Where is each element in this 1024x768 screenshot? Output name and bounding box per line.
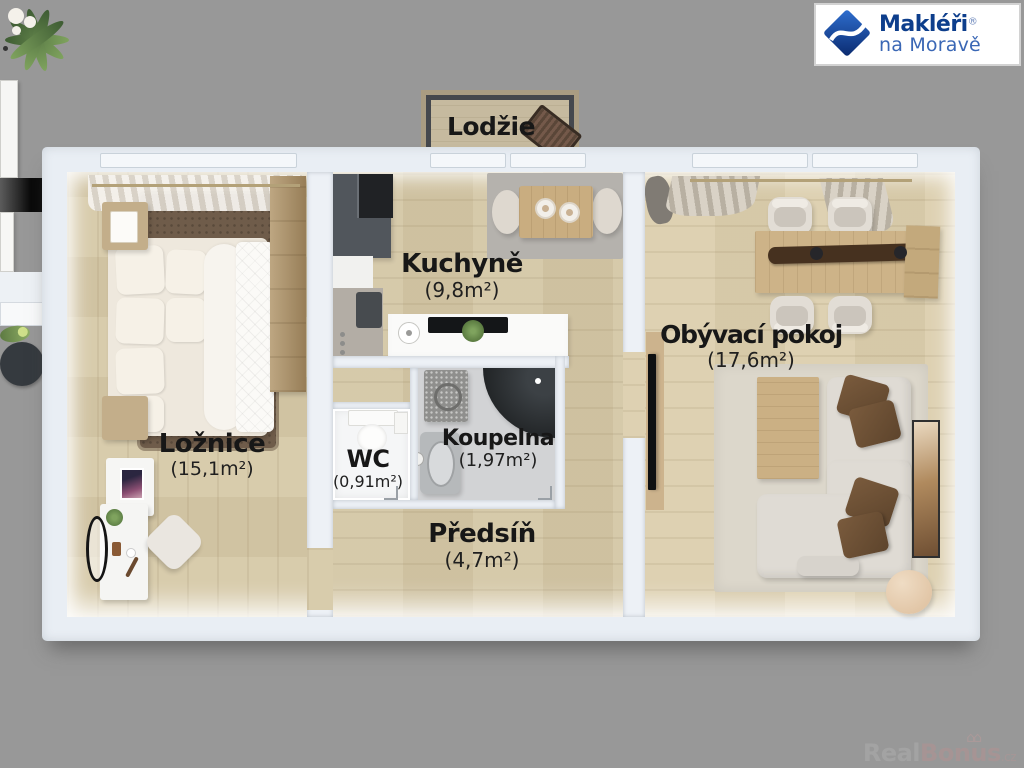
registered-mark: ®	[968, 17, 978, 28]
kitchen-sink	[356, 292, 382, 328]
tv	[648, 354, 656, 490]
plate	[535, 198, 556, 219]
wardrobe	[270, 176, 306, 392]
wall-storage-wc	[333, 402, 410, 409]
bathroom-door-mark	[538, 486, 552, 500]
bed-pillow	[115, 297, 165, 345]
room-name: Ložnice	[127, 431, 297, 458]
realbonus-watermark: RealBonus.cz	[863, 739, 1016, 767]
dining-chair	[828, 197, 872, 235]
bed-folded-blanket	[236, 242, 274, 432]
window-bedroom	[100, 153, 297, 168]
candle	[24, 16, 36, 28]
candle	[8, 8, 24, 24]
room-label-kuchyne: Kuchyně (9,8m²)	[382, 251, 542, 302]
wall-kitchen-bath	[333, 356, 569, 368]
kitchen-cabinet	[333, 256, 373, 290]
pot	[398, 322, 420, 344]
fridge-dark-section	[357, 174, 393, 218]
room-name: Lodžie	[421, 114, 561, 140]
bedroom-doorway	[307, 548, 333, 610]
room-label-predsin: Předsíň (4,7m²)	[402, 521, 562, 572]
balcony-door-right	[510, 153, 586, 168]
table-plant-sprig	[0, 324, 31, 344]
wall-art	[912, 420, 940, 558]
nightstand-top	[102, 202, 148, 250]
watermark-bonus: Bonus	[920, 739, 1001, 767]
room-area: (0,91m²)	[328, 472, 408, 491]
plate	[559, 202, 580, 223]
living-pouf	[886, 570, 932, 614]
bed-pillow	[165, 249, 207, 295]
kitchen-dining-table	[519, 186, 593, 238]
brand-subtitle: na Moravě	[879, 34, 981, 56]
vanity-plant	[106, 509, 123, 526]
balcony-door-left	[430, 153, 506, 168]
wall-wc-bath	[410, 368, 418, 500]
bed-pillow	[115, 245, 165, 295]
wall-bath-hall	[333, 500, 555, 509]
watermark-cz: .cz	[1001, 750, 1016, 764]
hair-brush	[125, 556, 139, 577]
bed-pillow	[115, 347, 165, 395]
coffee-table-tray	[0, 342, 44, 386]
living-curtain-rod	[690, 179, 912, 182]
kitchen-plant	[462, 320, 484, 342]
coffee-table	[757, 377, 819, 479]
agency-logo-text: Makléři® na Moravě	[879, 13, 981, 56]
living-doorway	[623, 352, 645, 438]
room-area: (9,8m²)	[382, 278, 542, 302]
kitchen-chair-right	[592, 188, 622, 234]
floor-plan-canvas: Lodžie	[0, 0, 1024, 768]
counter-knob	[340, 350, 345, 355]
agency-logo: Makléři® na Moravě	[814, 3, 1021, 66]
room-name: Koupelna	[429, 427, 567, 450]
washing-machine	[424, 370, 468, 422]
room-label-lodzie: Lodžie	[421, 114, 561, 140]
room-name: Předsíň	[402, 521, 562, 548]
bed-pillow	[166, 298, 206, 342]
kitchen-chair-left	[492, 190, 522, 234]
room-area: (1,97m²)	[429, 450, 567, 472]
window-living-left	[692, 153, 808, 168]
open-door-leaf	[0, 80, 18, 178]
room-area: (4,7m²)	[402, 548, 562, 572]
table-bowl	[810, 247, 823, 260]
nightstand-tray	[110, 211, 138, 243]
room-area: (15,1m²)	[127, 458, 297, 481]
room-name: Kuchyně	[382, 251, 542, 278]
window-living-right	[812, 153, 918, 168]
dining-chair	[768, 197, 812, 235]
diamond-swoosh-icon	[822, 8, 872, 62]
room-label-loznice: Ložnice (15,1m²)	[127, 431, 297, 481]
wall-mirror	[86, 516, 108, 582]
room-label-obyvaci-pokoj: Obývací pokoj (17,6m²)	[646, 322, 856, 372]
cosmetic-bottle	[112, 542, 121, 556]
counter-knob	[340, 332, 345, 337]
candle	[12, 26, 21, 35]
sideboard-cabinet	[904, 225, 940, 298]
room-name: WC	[328, 447, 408, 472]
toilet-paper-holder	[394, 412, 408, 434]
watermark-real: Real	[863, 739, 920, 767]
room-label-wc: WC (0,91m²)	[328, 447, 408, 491]
room-name: Obývací pokoj	[646, 322, 856, 348]
bedroom-door-leaf	[0, 212, 14, 272]
counter-knob	[340, 341, 345, 346]
table-bowl	[894, 246, 907, 259]
bedroom-curtain-rod	[92, 184, 300, 187]
fridge-tall-cabinet	[333, 174, 391, 258]
room-area: (17,6m²)	[646, 348, 856, 372]
sofa-armrest	[797, 556, 859, 576]
room-label-koupelna: Koupelna (1,97m²)	[429, 427, 567, 472]
